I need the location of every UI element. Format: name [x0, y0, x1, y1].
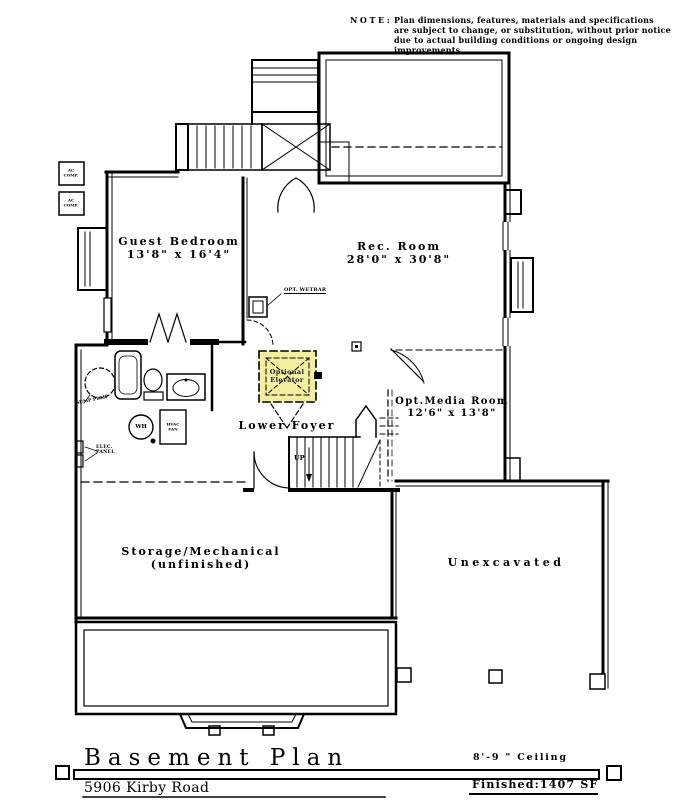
electrical-panel-icon	[77, 441, 97, 467]
ac-comp-label-2: AC COMP.	[64, 199, 79, 208]
guest-bedroom-name: Guest Bedroom	[118, 235, 240, 248]
upper-structure-outline	[319, 53, 509, 183]
guest-bedroom-label: Guest Bedroom 13'8" x 16'4"	[118, 235, 240, 261]
porch-outline	[76, 622, 396, 735]
sink-vanity-icon	[167, 374, 205, 400]
media-room-name: Opt.Media Room	[395, 396, 509, 408]
stairs-up-label: UP	[294, 454, 305, 462]
note-text: Plan dimensions, features, materials and…	[394, 15, 688, 55]
toilet-icon	[144, 369, 163, 400]
hvac-line2: FAN	[167, 427, 180, 432]
note-line-1: Plan dimensions, features, materials and…	[394, 15, 688, 25]
media-room-dims: 12'6" x 13'8"	[395, 408, 509, 420]
rec-room-name: Rec. Room	[347, 240, 451, 253]
note-heading: NOTE:	[350, 15, 392, 25]
rec-room-label: Rec. Room 28'0" x 30'8"	[347, 240, 451, 266]
lower-foyer-label: Lower Foyer	[239, 419, 336, 432]
ceiling-height-label: 8'-9 " Ceiling	[473, 752, 568, 763]
media-room-label: Opt.Media Room 12'6" x 13'8"	[395, 396, 509, 420]
note-line-3: due to actual building conditions or ong…	[394, 35, 688, 55]
foundation-walls	[76, 481, 608, 689]
wetbar-label: OPT. WETBAR	[284, 287, 326, 294]
elevator-shaft	[259, 351, 322, 428]
storage-sub: (unfinished)	[121, 558, 280, 571]
bedroom-wall-doors	[107, 314, 245, 348]
rec-room-dims: 28'0" x 30'8"	[347, 253, 451, 266]
note-line-2: are subject to change, or substitution, …	[394, 25, 688, 35]
elec-panel-label: ELEC. PANEL	[96, 445, 115, 455]
tub-icon	[115, 351, 141, 399]
elec-panel-line2: PANEL	[96, 450, 115, 455]
wetbar-icon	[249, 294, 281, 317]
ac1-line2: COMP.	[64, 173, 79, 178]
plan-title: Basement Plan	[84, 745, 349, 771]
hvac-fan-label: HVAC FAN	[167, 423, 180, 432]
stoop-outline	[252, 60, 318, 124]
elevator-line2: Elevator	[270, 377, 305, 385]
guest-bedroom-dims: 13'8" x 16'4"	[118, 248, 240, 261]
elevator-label: Optional Elevator	[270, 369, 305, 384]
ac2-line2: COMP.	[64, 203, 79, 208]
storage-name: Storage/Mechanical	[121, 545, 280, 558]
foyer-door-swing	[247, 320, 273, 346]
ac-comp-label-1: AC COMP.	[64, 169, 79, 178]
water-heater-label: WH	[135, 424, 146, 430]
finished-area-label: Finished:1407 SF	[472, 778, 599, 791]
basement-plan-page: NOTE: Plan dimensions, features, materia…	[0, 0, 688, 800]
storage-label: Storage/Mechanical (unfinished)	[121, 545, 280, 571]
upper-stairs	[176, 124, 502, 212]
unexcavated-label: Unexcavated	[448, 556, 565, 569]
post-marker	[352, 342, 361, 351]
plan-address: 5906 Kirby Road	[84, 780, 209, 796]
